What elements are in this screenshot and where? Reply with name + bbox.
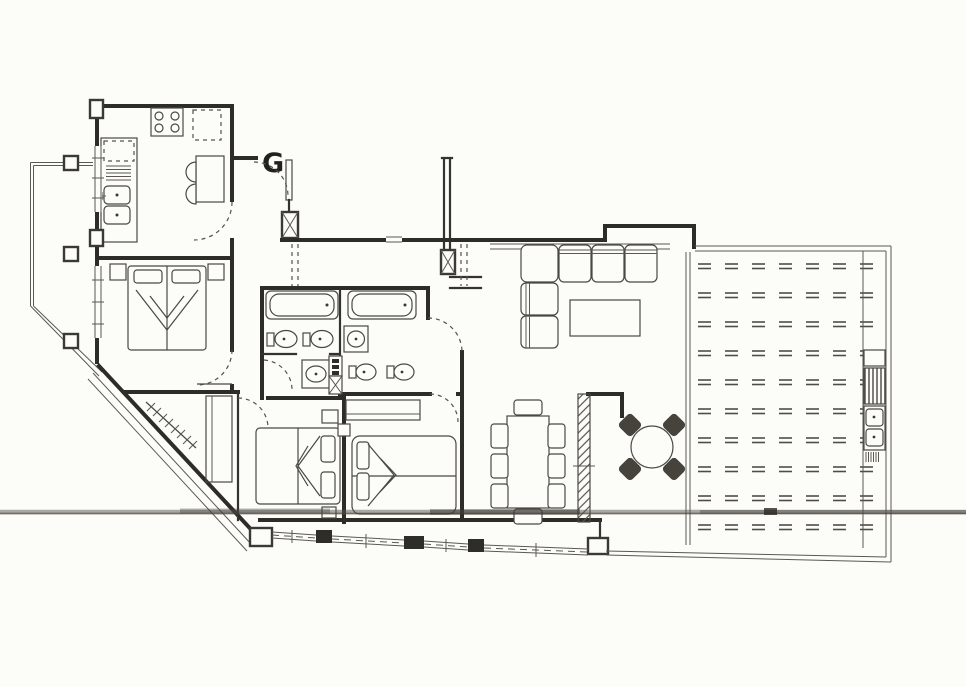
bathroom-2 [344, 291, 416, 380]
door-arc [238, 398, 268, 428]
stove-icon [151, 108, 183, 136]
floor-plan-svg: G [0, 0, 966, 687]
bidet-icon [349, 364, 376, 380]
outdoor-kitchen [864, 348, 885, 462]
door-arc [264, 360, 292, 390]
nightstand-icon [338, 424, 350, 436]
chair-icon [548, 454, 565, 478]
coffee-table-icon [570, 300, 640, 336]
entry-door-leaf [286, 160, 292, 200]
bathroom-1 [266, 291, 342, 394]
pier [404, 536, 424, 549]
dash-paving [694, 252, 884, 544]
chair-icon [514, 400, 542, 415]
pillow [172, 270, 200, 283]
west-balcony [31, 156, 103, 376]
wall [588, 394, 622, 416]
refrigerator-icon [193, 110, 221, 140]
door-arc [197, 350, 232, 385]
bidet-icon [267, 331, 297, 348]
double-bed-icon [352, 436, 456, 514]
nightstand-icon [322, 410, 338, 423]
kitchen-sink-icon [98, 138, 137, 242]
pillow [357, 473, 369, 500]
window [424, 539, 468, 552]
window [92, 146, 104, 212]
round-table-icon [617, 412, 686, 481]
barbecue-icon [864, 368, 885, 404]
window [332, 534, 404, 548]
chair-icon [491, 484, 508, 508]
column [64, 334, 78, 348]
double-bed-icon [128, 266, 206, 350]
door-arc [194, 202, 232, 240]
duct-shaft-icon [329, 356, 342, 394]
ink-blob [764, 508, 777, 515]
chair-icon [491, 454, 508, 478]
dining-table-icon [507, 416, 549, 508]
washbasin-icon [302, 360, 330, 388]
terrace [606, 246, 891, 562]
chair-icon [548, 424, 565, 448]
bathtub-icon [266, 291, 338, 319]
column [90, 230, 103, 246]
south-facade-windows [272, 530, 588, 557]
pillow [357, 442, 369, 469]
toilet-icon [387, 364, 414, 380]
entrance-hall: G [232, 148, 481, 288]
pillow [321, 436, 335, 462]
pier [468, 539, 484, 552]
window [272, 530, 316, 543]
nightstand-icon [110, 264, 126, 280]
breakfast-table-icon [186, 156, 224, 204]
patio-nook [573, 394, 687, 554]
chair-icon [186, 162, 196, 182]
washbasin-icon [344, 326, 368, 352]
wardrobe-icon [206, 396, 232, 482]
nightstand-icon [208, 264, 224, 280]
window [92, 266, 104, 338]
pillow [321, 472, 335, 498]
column [64, 247, 78, 261]
glass-wall [686, 252, 690, 545]
pillow [134, 270, 162, 283]
hatched-wall [573, 394, 595, 522]
diagonal-wall-outer [88, 373, 252, 551]
wall-end-pier [588, 538, 608, 554]
dining-area [491, 400, 565, 524]
chair-icon [491, 424, 508, 448]
door-arc [430, 394, 458, 422]
window [484, 543, 588, 557]
bedroom-3 [338, 394, 458, 514]
column [64, 156, 78, 170]
double-bed-icon [256, 428, 340, 504]
chair-icon [186, 184, 196, 204]
pier [316, 530, 332, 543]
duct-column-icon [282, 212, 298, 238]
column [90, 100, 103, 118]
toilet-icon [303, 331, 333, 348]
wardrobe-icon [346, 400, 420, 420]
bathtub-icon [348, 291, 416, 319]
chair-icon [548, 484, 565, 508]
wall-end-pier [250, 528, 272, 546]
scanned-floor-plan-page: G [0, 0, 966, 687]
balcony-boundary [31, 163, 98, 307]
door-arc [428, 318, 462, 352]
bedroom-1 [92, 258, 238, 392]
